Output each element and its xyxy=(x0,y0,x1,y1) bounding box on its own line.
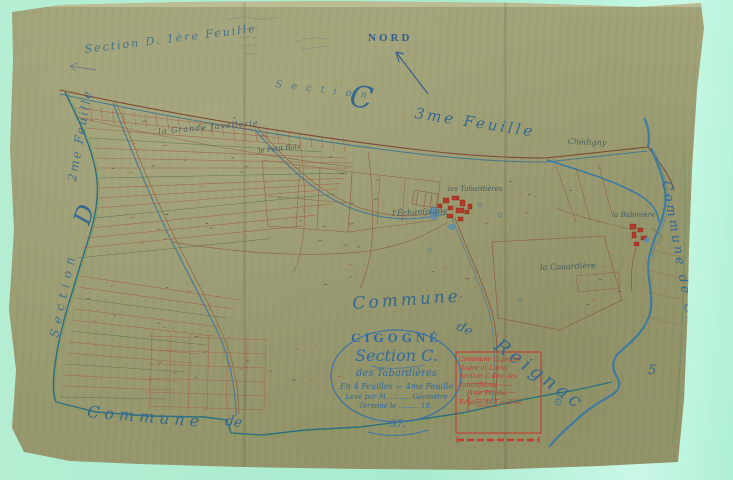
east-hamlet-pond xyxy=(644,237,650,243)
cartouche-title: CIGOGNÉ xyxy=(330,331,463,344)
cartouche-sheets-line: En 4 Feuilles — 4me Feuille xyxy=(330,383,463,391)
map-paper-sheet: NORD Section D. 1ère Feuille Section C 3… xyxy=(0,0,733,480)
cartouche-date-line: Terminé le ......... 18.. xyxy=(330,403,463,410)
legend-line-2: Section C dite des Tabardières xyxy=(459,373,539,390)
west-small-arrow xyxy=(70,63,96,71)
place-label-tabardieres: les Tabardières xyxy=(448,186,502,193)
cartouche-section: Section C. xyxy=(330,348,463,364)
legend-line-1: Commune Cigogné (Indre et Loire) xyxy=(459,356,539,373)
cartouche-surveyor-line: Levé par M. ......... Géomètre xyxy=(330,394,463,401)
compass-label: NORD xyxy=(368,33,412,44)
road-label-chedigny: Chédigny xyxy=(568,138,607,147)
place-label-babiniere: la Babinière xyxy=(612,212,655,219)
legend-line-4: Échelle de 1 à 2500 xyxy=(459,399,539,408)
sheet-digit: 5 xyxy=(648,364,656,377)
legend-line-3: 4me Feuille xyxy=(459,390,539,399)
page-number: 37. xyxy=(390,420,406,430)
north-arrow xyxy=(396,52,428,94)
garden-enclosure xyxy=(412,190,438,208)
commune-label-bottom-de: de xyxy=(224,414,243,430)
east-hamlet-buildings xyxy=(630,224,647,246)
cartouche: CIGOGNÉ Section C. des Tabardières En 4 … xyxy=(330,331,463,410)
cartouche-subtitle: des Tabardières xyxy=(330,369,463,379)
legend-box-text: Commune Cigogné (Indre et Loire) Section… xyxy=(459,356,539,408)
scanned-cadastral-map: NORD Section D. 1ère Feuille Section C 3… xyxy=(0,0,733,480)
sheet-label-top-letter: C xyxy=(348,82,375,115)
